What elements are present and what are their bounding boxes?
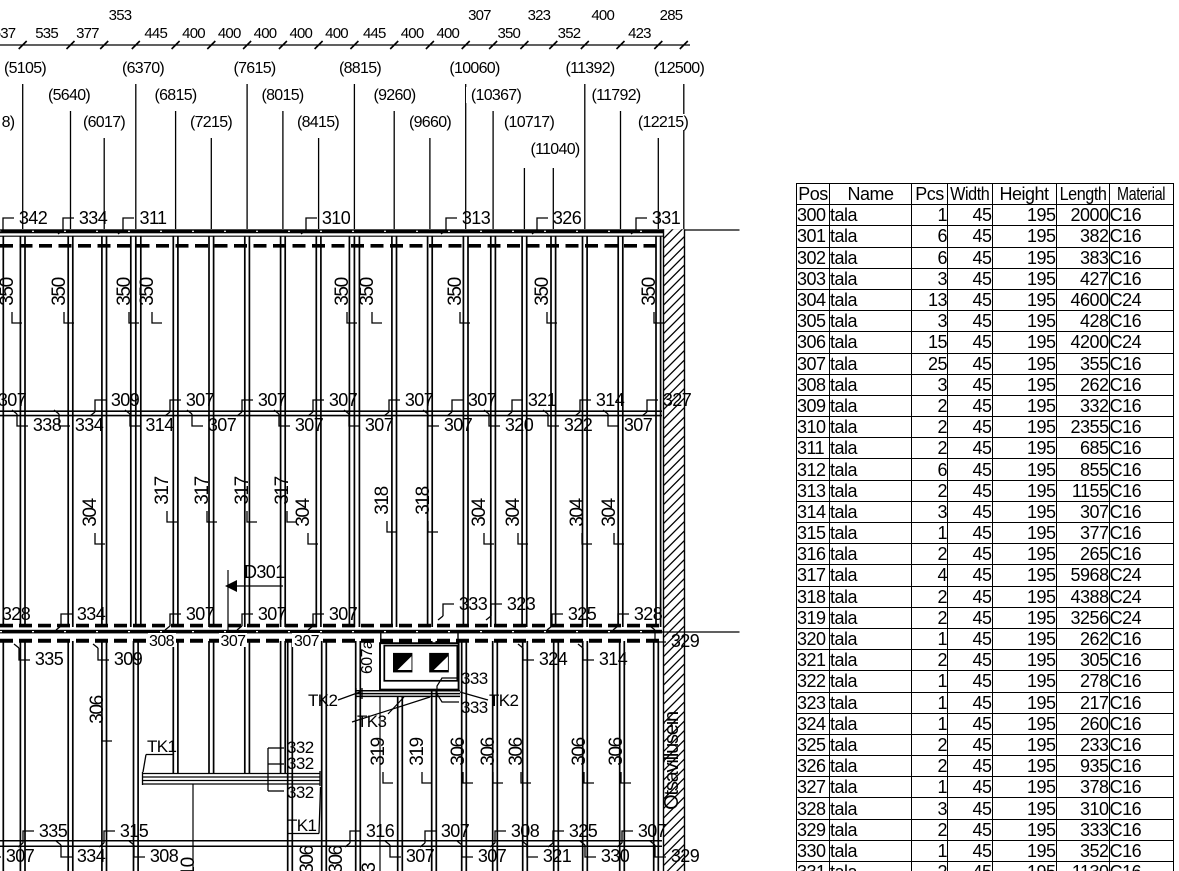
svg-text:317: 317 [152, 476, 173, 504]
svg-text:317: 317 [272, 476, 293, 504]
svg-text:314: 314 [145, 415, 174, 435]
svg-text:323: 323 [528, 7, 551, 24]
svg-text:400: 400 [254, 25, 277, 42]
svg-text:318: 318 [413, 486, 434, 514]
svg-text:(9260): (9260) [373, 87, 415, 104]
svg-text:304: 304 [599, 497, 620, 526]
svg-text:(10060): (10060) [449, 60, 500, 77]
svg-text:307: 307 [0, 390, 27, 410]
svg-text:400: 400 [289, 25, 312, 42]
svg-text:328: 328 [634, 604, 663, 624]
svg-text:400: 400 [436, 25, 459, 42]
svg-text:315: 315 [120, 821, 149, 841]
svg-text:304: 304 [80, 497, 101, 526]
svg-text:(9660): (9660) [409, 114, 451, 131]
svg-text:535: 535 [35, 25, 58, 42]
svg-text:(7215): (7215) [190, 114, 232, 131]
svg-text:(6017): (6017) [83, 114, 125, 131]
svg-text:307: 307 [186, 390, 215, 410]
svg-text:(6370): (6370) [122, 60, 164, 77]
svg-text:(8015): (8015) [261, 87, 303, 104]
svg-text:350: 350 [357, 277, 378, 305]
svg-text:400: 400 [218, 25, 241, 42]
svg-text:335: 335 [35, 649, 64, 669]
svg-text:306: 306 [448, 737, 469, 765]
svg-text:306: 306 [478, 737, 499, 765]
svg-text:307: 307 [624, 415, 653, 435]
svg-text:313: 313 [462, 208, 491, 228]
svg-text:317: 317 [232, 476, 253, 504]
svg-text:307: 307 [294, 633, 320, 650]
svg-text:285: 285 [660, 7, 683, 24]
svg-text:(8415): (8415) [297, 114, 339, 131]
svg-text:304: 304 [567, 497, 588, 526]
svg-text:(11792): (11792) [591, 87, 640, 104]
svg-text:334: 334 [77, 604, 106, 624]
svg-text:330: 330 [601, 846, 630, 866]
svg-text:320: 320 [505, 415, 534, 435]
svg-text:304: 304 [469, 497, 490, 526]
svg-text:314: 314 [596, 390, 625, 410]
svg-text:377: 377 [76, 25, 99, 42]
svg-text:306: 306 [606, 737, 627, 765]
svg-text:(11040): (11040) [530, 141, 579, 158]
svg-text:TK3: TK3 [357, 712, 387, 731]
svg-text:331: 331 [652, 208, 681, 228]
svg-text:319: 319 [368, 737, 389, 765]
svg-text:329: 329 [671, 631, 700, 651]
svg-text:(12215): (12215) [638, 114, 689, 131]
svg-text:TK2: TK2 [489, 691, 519, 710]
svg-text:(5105): (5105) [4, 60, 46, 77]
svg-text:322: 322 [564, 415, 593, 435]
svg-text:(10367): (10367) [471, 87, 522, 104]
svg-text:333: 333 [461, 698, 488, 717]
svg-text:307: 307 [406, 846, 435, 866]
svg-text:307: 307 [221, 633, 247, 650]
svg-text:537: 537 [0, 25, 16, 42]
svg-text:350: 350 [332, 277, 353, 305]
svg-text:307: 307 [468, 390, 497, 410]
svg-text:350: 350 [532, 277, 553, 305]
svg-text:310: 310 [322, 208, 351, 228]
svg-text:TK1: TK1 [147, 737, 177, 756]
svg-text:307: 307 [638, 821, 667, 841]
svg-text:(11392): (11392) [565, 60, 614, 77]
svg-text:400: 400 [591, 7, 614, 24]
svg-text:353: 353 [109, 7, 132, 24]
svg-text:323: 323 [507, 594, 536, 614]
svg-text:307: 307 [444, 415, 473, 435]
svg-text:308: 308 [149, 633, 175, 650]
svg-text:Otsavillusein: Otsavillusein [661, 712, 683, 810]
svg-text:321: 321 [528, 390, 557, 410]
svg-text:306: 306 [87, 695, 108, 723]
svg-text:307: 307 [405, 390, 434, 410]
svg-text:306: 306 [569, 737, 590, 765]
svg-text:307: 307 [208, 415, 237, 435]
svg-text:317: 317 [192, 476, 213, 504]
svg-text:(5640): (5640) [48, 87, 90, 104]
svg-text:TK1: TK1 [287, 816, 317, 835]
svg-text:310: 310 [178, 857, 199, 871]
svg-text:307: 307 [365, 415, 394, 435]
svg-text:308: 308 [150, 846, 179, 866]
svg-text:321: 321 [543, 846, 572, 866]
svg-text:318: 318 [372, 486, 393, 514]
svg-text:309: 309 [114, 649, 143, 669]
svg-text:TK2: TK2 [308, 691, 338, 710]
svg-text:307: 307 [329, 390, 358, 410]
svg-text:350: 350 [497, 25, 520, 42]
svg-text:(7615): (7615) [233, 60, 275, 77]
svg-text:316: 316 [366, 821, 395, 841]
svg-text:342: 342 [19, 208, 48, 228]
svg-text:334: 334 [77, 846, 106, 866]
svg-text:350: 350 [137, 277, 158, 305]
svg-text:307: 307 [295, 415, 324, 435]
svg-text:334: 334 [75, 415, 104, 435]
svg-text:(12500): (12500) [654, 60, 705, 77]
svg-text:307: 307 [478, 846, 507, 866]
svg-text:445: 445 [363, 25, 386, 42]
svg-text:423: 423 [628, 25, 651, 42]
svg-text:306: 306 [326, 845, 347, 871]
svg-text:307: 307 [329, 604, 358, 624]
svg-text:607a: 607a [359, 640, 376, 674]
svg-text:329: 329 [671, 846, 700, 866]
svg-text:311: 311 [140, 208, 167, 228]
svg-text:334: 334 [79, 208, 108, 228]
svg-text:400: 400 [401, 25, 424, 42]
svg-text:333: 333 [459, 594, 488, 614]
svg-text:307: 307 [258, 390, 287, 410]
svg-text:307: 307 [6, 846, 35, 866]
svg-text:304: 304 [293, 497, 314, 526]
svg-text:(8815): (8815) [339, 60, 381, 77]
svg-text:327: 327 [663, 390, 692, 410]
svg-text:350: 350 [445, 277, 466, 305]
svg-text:338: 338 [33, 415, 62, 435]
svg-text:306: 306 [297, 845, 318, 871]
svg-text:307: 307 [258, 604, 287, 624]
svg-text:D301: D301 [244, 562, 285, 582]
svg-text:325: 325 [568, 604, 597, 624]
svg-text:325: 325 [569, 821, 598, 841]
svg-text:307: 307 [468, 7, 491, 24]
svg-text:306: 306 [506, 737, 527, 765]
svg-text:304: 304 [503, 497, 524, 526]
svg-text:(6815): (6815) [154, 87, 196, 104]
svg-text:3: 3 [359, 863, 380, 871]
svg-text:307: 307 [186, 604, 215, 624]
svg-text:308: 308 [511, 821, 540, 841]
svg-text:400: 400 [182, 25, 205, 42]
svg-text:324: 324 [539, 649, 568, 669]
svg-text:328: 328 [2, 604, 31, 624]
svg-text:350: 350 [639, 277, 660, 305]
svg-text:350: 350 [114, 277, 135, 305]
svg-text:314: 314 [599, 649, 628, 669]
svg-text:307: 307 [441, 821, 470, 841]
svg-text:(10717): (10717) [504, 114, 555, 131]
svg-text:333: 333 [461, 669, 488, 688]
svg-text:335: 335 [39, 821, 68, 841]
svg-text:350: 350 [49, 277, 70, 305]
svg-text:309: 309 [111, 390, 140, 410]
svg-text:319: 319 [407, 737, 428, 765]
svg-text:8): 8) [2, 114, 15, 131]
svg-text:445: 445 [144, 25, 167, 42]
svg-text:352: 352 [558, 25, 581, 42]
svg-text:332: 332 [287, 783, 314, 802]
svg-text:350: 350 [0, 277, 18, 305]
svg-text:326: 326 [553, 208, 582, 228]
svg-text:332: 332 [287, 754, 314, 773]
svg-text:400: 400 [325, 25, 348, 42]
